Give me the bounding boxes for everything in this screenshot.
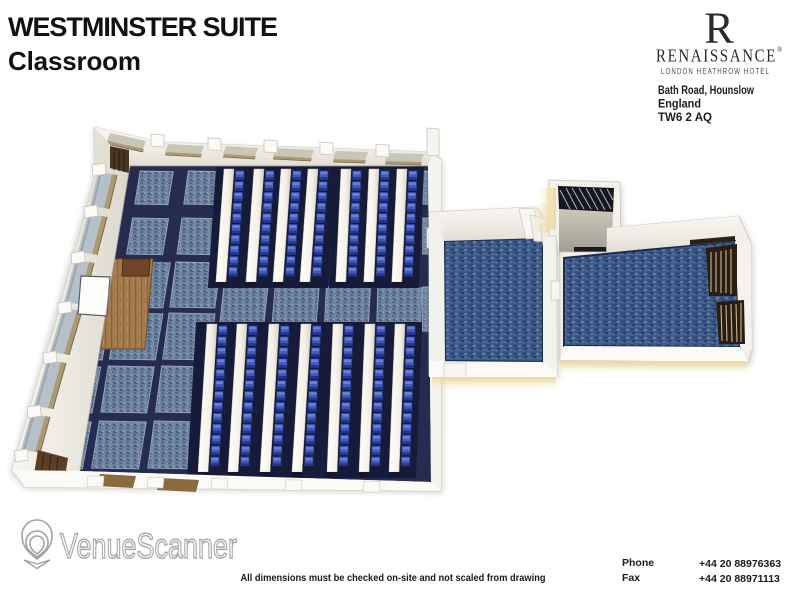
- svg-text:RENAISSANCE: RENAISSANCE: [656, 46, 777, 66]
- svg-text:Classroom: Classroom: [8, 46, 141, 76]
- svg-text:LONDON HEATHROW HOTEL: LONDON HEATHROW HOTEL: [661, 66, 770, 76]
- svg-text:Fax: Fax: [622, 572, 640, 584]
- svg-text:WESTMINSTER SUITE: WESTMINSTER SUITE: [8, 12, 278, 42]
- svg-text:VenueScanner: VenueScanner: [60, 527, 237, 566]
- svg-text:TW6 2 AQ: TW6 2 AQ: [658, 112, 712, 124]
- svg-text:Bath Road, Hounslow: Bath Road, Hounslow: [658, 85, 754, 97]
- svg-text:+44 20 88976363: +44 20 88976363: [699, 558, 781, 570]
- svg-text:England: England: [658, 99, 701, 111]
- svg-text:+44 20 88971113: +44 20 88971113: [699, 573, 780, 585]
- svg-text:All dimensions must be checked: All dimensions must be checked on-site a…: [241, 572, 546, 584]
- svg-text:Phone: Phone: [622, 557, 654, 569]
- svg-text:®: ®: [777, 46, 783, 54]
